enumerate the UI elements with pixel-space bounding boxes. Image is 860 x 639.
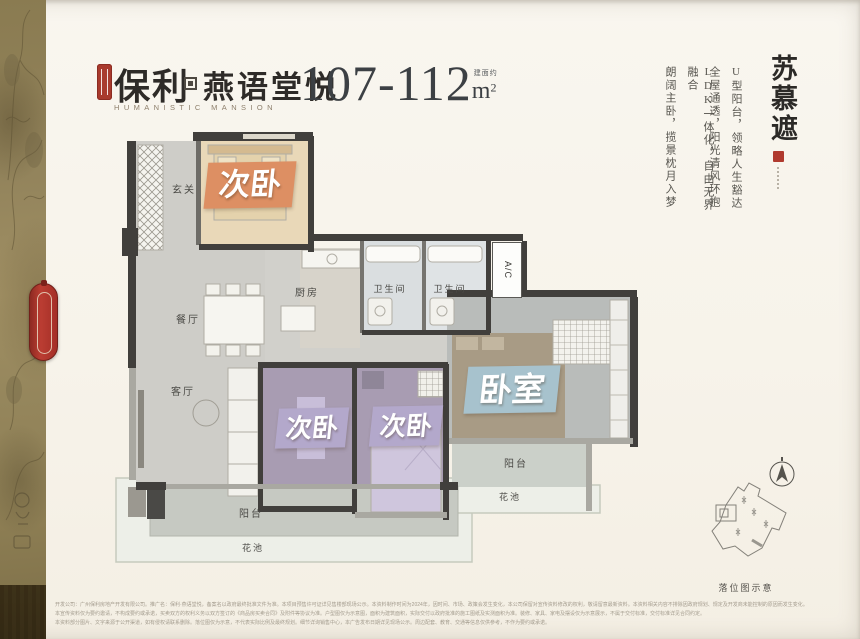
siteplan-caption: 落位图示意 — [706, 581, 786, 594]
siteplan-sketch — [712, 457, 794, 556]
label-ac-unit: A/C — [492, 242, 522, 298]
disclaimer-line-1: 开发公司：广州保利房地产开发有限公司。推广名：保利·燕语堂悦，备案名以政府最终批… — [55, 601, 811, 610]
label-balcony-bottom: 阳台 — [229, 505, 273, 520]
label-balcony-right: 阳台 — [494, 455, 538, 470]
poster-canvas: 保利 燕语堂悦 HUMANISTIC MANSION 107-112建面约m2 … — [0, 0, 860, 639]
room-badge-secondary-bedroom-left: 次卧 — [275, 407, 349, 448]
label-flowerbed-right: 花池 — [488, 490, 532, 503]
label-living-room: 客厅 — [163, 383, 203, 398]
label-kitchen: 厨房 — [287, 284, 327, 299]
label-bathroom-1: 卫生间 — [366, 282, 414, 295]
room-badge-secondary-bedroom-mid: 次卧 — [369, 405, 443, 446]
label-entrance: 玄关 — [165, 181, 203, 196]
disclaimer-line-2: 本宣传资料仅为要约邀请，不构成要约或承诺，买卖双方的权利义务以双方签订的《商品房… — [55, 610, 811, 619]
label-bathroom-2: 卫生间 — [426, 282, 474, 295]
room-badge-secondary-bedroom-top: 次卧 — [203, 161, 296, 209]
floorplan-drawing — [0, 0, 860, 639]
label-dining: 餐厅 — [168, 311, 208, 326]
label-flowerbed-bottom: 花池 — [231, 541, 275, 554]
room-badge-master-bedroom: 卧室 — [463, 365, 560, 414]
disclaimer-line-3: 本资料部分图片、文字来源于公开渠道，如有侵权请联系删除。落位图仅为示意，不代表实… — [55, 619, 811, 628]
